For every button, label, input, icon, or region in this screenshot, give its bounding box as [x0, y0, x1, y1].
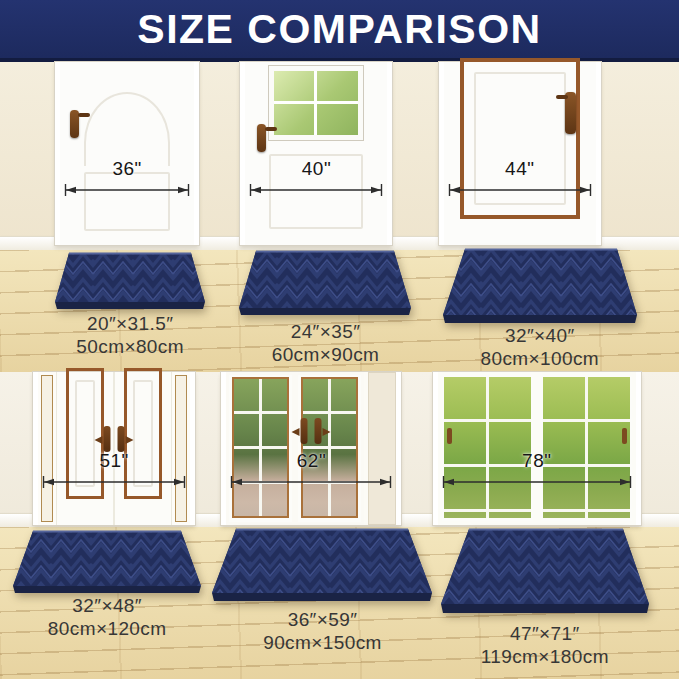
door-handle [315, 418, 322, 444]
row-single-doors: 36" 20″×31.5″ [0, 62, 679, 372]
mat-size-inches: 47″×71″ [481, 622, 609, 645]
door-glass-panes [301, 377, 358, 518]
door-glass-panes [543, 377, 630, 518]
door-handle [257, 124, 266, 152]
door-handle [447, 428, 452, 444]
comparison-cell-36in: 36" 20″×31.5″ [0, 62, 226, 372]
header-banner: SIZE COMPARISON [0, 0, 679, 62]
door-window [269, 66, 363, 140]
door-handle [622, 428, 627, 444]
mat-size-caption: 20″×31.5″ 50cm×80cm [76, 312, 184, 358]
door-62in [221, 372, 401, 525]
measure-arrow-icon [230, 474, 392, 490]
door-mat [237, 250, 413, 316]
size-comparison-infographic: SIZE COMPARISON 36" [0, 0, 679, 679]
mat-size-cm: 50cm×80cm [76, 335, 184, 358]
mat-size-caption: 24″×35″ 60cm×90cm [272, 320, 380, 366]
door-glass-panes [232, 377, 289, 518]
mat-size-cm: 119cm×180cm [481, 645, 609, 668]
mat-size-inches: 20″×31.5″ [76, 312, 184, 335]
mat-size-inches: 32″×48″ [48, 594, 167, 617]
mat-size-inches: 32″×40″ [481, 324, 600, 347]
door-glass-panes [444, 377, 531, 518]
mat-size-caption: 32″×40″ 80cm×100cm [481, 324, 600, 370]
door-width-measure: 62" [230, 450, 392, 490]
mat-size-caption: 47″×71″ 119cm×180cm [481, 622, 609, 668]
door-mat [439, 528, 651, 614]
door-mat [210, 528, 434, 602]
comparison-cell-44in: 44" 32″×40″ 8 [453, 62, 679, 372]
door-width-label: 44" [505, 158, 534, 180]
door-handle [70, 110, 79, 138]
mat-size-cm: 80cm×100cm [481, 347, 600, 370]
measure-arrow-icon [249, 182, 383, 198]
door-handle [104, 426, 111, 452]
door-width-measure: 36" [64, 158, 190, 198]
door-handle [301, 418, 308, 444]
door-leaf [226, 372, 295, 525]
comparison-cell-51in: 51" 32″×48″ 8 [0, 372, 226, 679]
door-leaf [295, 372, 364, 525]
door-51in [33, 372, 195, 525]
comparison-cell-40in: 40" 24″×35″ 6 [226, 62, 452, 372]
door-arch-panel [84, 92, 170, 166]
door-leaf [438, 372, 537, 525]
door-width-measure: 51" [42, 450, 186, 490]
page-title: SIZE COMPARISON [137, 6, 541, 53]
door-width-label: 36" [112, 158, 141, 180]
door-width-measure: 44" [448, 158, 592, 198]
door-width-label: 62" [297, 450, 326, 472]
door-78in [433, 372, 641, 525]
door-mat [441, 248, 639, 324]
mat-size-cm: 90cm×150cm [263, 631, 382, 654]
mat-size-caption: 32″×48″ 80cm×120cm [48, 594, 167, 640]
door-40in [240, 62, 392, 245]
measure-arrow-icon [448, 182, 592, 198]
door-width-measure: 78" [442, 450, 632, 490]
measure-arrow-icon [64, 182, 190, 198]
door-sidelite [172, 372, 190, 525]
door-width-label: 40" [302, 158, 331, 180]
mat-size-cm: 60cm×90cm [272, 343, 380, 366]
door-36in [55, 62, 199, 245]
door-mat [11, 530, 203, 594]
door-width-label: 51" [99, 450, 128, 472]
door-handle [118, 426, 125, 452]
mat-size-cm: 80cm×120cm [48, 617, 167, 640]
door-width-label: 78" [522, 450, 551, 472]
door-width-measure: 40" [249, 158, 383, 198]
mat-size-inches: 36″×59″ [263, 608, 382, 631]
row-double-doors: 51" 32″×48″ 8 [0, 372, 679, 679]
mat-size-inches: 24″×35″ [272, 320, 380, 343]
door-handle-pair [301, 418, 322, 444]
door-handle [565, 92, 576, 134]
door-leaf [537, 372, 636, 525]
mat-size-caption: 36″×59″ 90cm×150cm [263, 608, 382, 654]
door-sidelite [38, 372, 56, 525]
door-mat [53, 252, 207, 310]
door-sidelite [364, 372, 396, 525]
comparison-cell-62in: 62" 36″×59″ 9 [226, 372, 452, 679]
door-44in [439, 62, 601, 245]
measure-arrow-icon [42, 474, 186, 490]
door-handle-pair [104, 426, 125, 452]
comparison-cell-78in: 78" 47″×71″ 1 [453, 372, 679, 679]
measure-arrow-icon [442, 474, 632, 490]
